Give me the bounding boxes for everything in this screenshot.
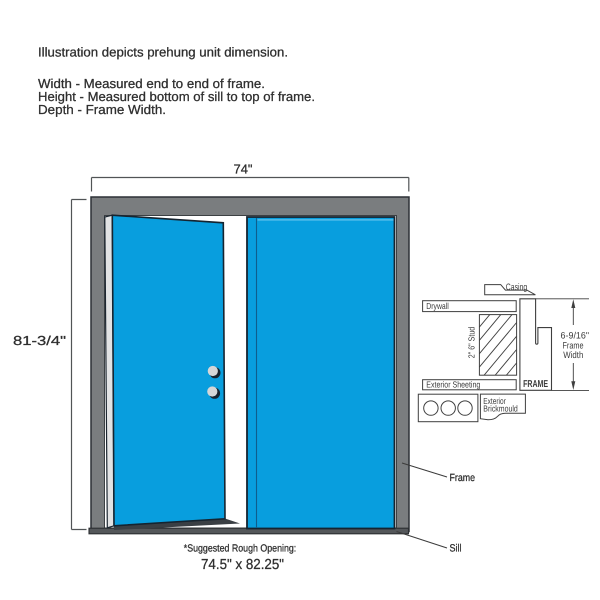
svg-text:*Suggested Rough Opening:: *Suggested Rough Opening: <box>184 543 297 554</box>
svg-text:Sill: Sill <box>450 543 462 555</box>
svg-text:Frame: Frame <box>450 472 476 484</box>
svg-text:Frame: Frame <box>563 340 584 350</box>
svg-text:81-3/4": 81-3/4" <box>13 333 66 348</box>
svg-text:Casing: Casing <box>506 282 528 292</box>
svg-text:6-9/16": 6-9/16" <box>561 330 590 340</box>
svg-text:Width: Width <box>563 350 583 360</box>
svg-text:Brickmould: Brickmould <box>483 404 518 414</box>
svg-text:Illustration depicts prehung u: Illustration depicts prehung unit dimens… <box>38 45 288 60</box>
svg-text:FRAME: FRAME <box>523 379 548 390</box>
svg-text:Depth - Frame Width.: Depth - Frame Width. <box>38 102 166 117</box>
svg-text:74.5" x 82.25": 74.5" x 82.25" <box>201 557 284 573</box>
svg-text:74": 74" <box>234 162 253 177</box>
svg-text:Drywall: Drywall <box>426 301 449 311</box>
svg-text:Exterior Sheeting: Exterior Sheeting <box>426 380 480 390</box>
svg-text:2" 6" Stud: 2" 6" Stud <box>466 327 476 359</box>
